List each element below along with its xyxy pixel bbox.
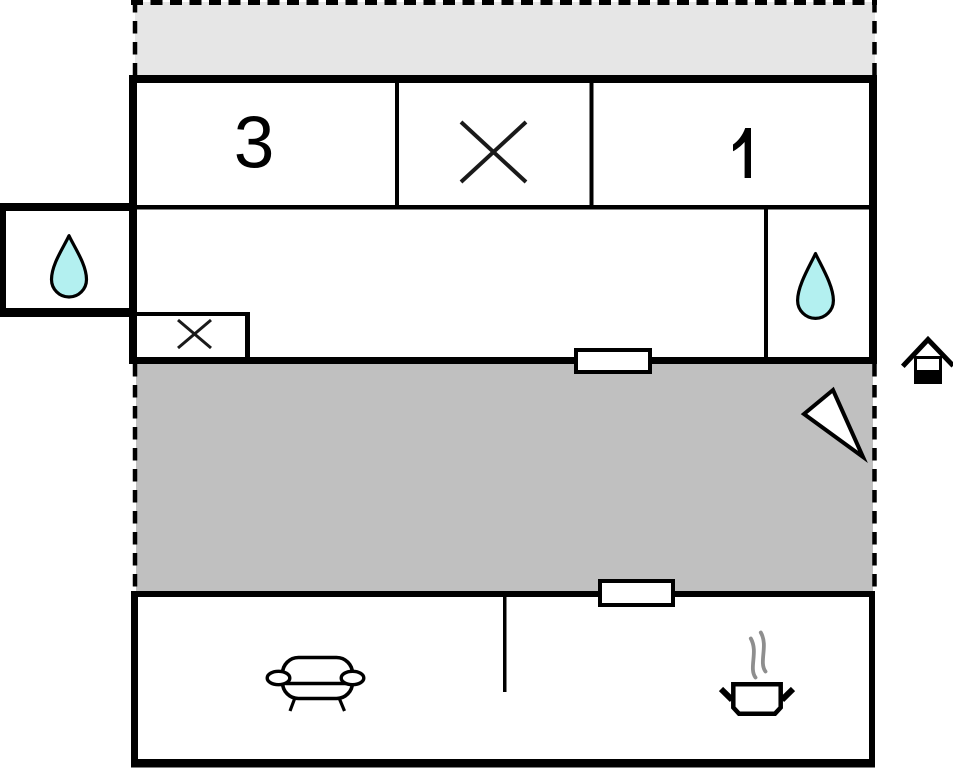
svg-text:3: 3 (234, 103, 275, 184)
